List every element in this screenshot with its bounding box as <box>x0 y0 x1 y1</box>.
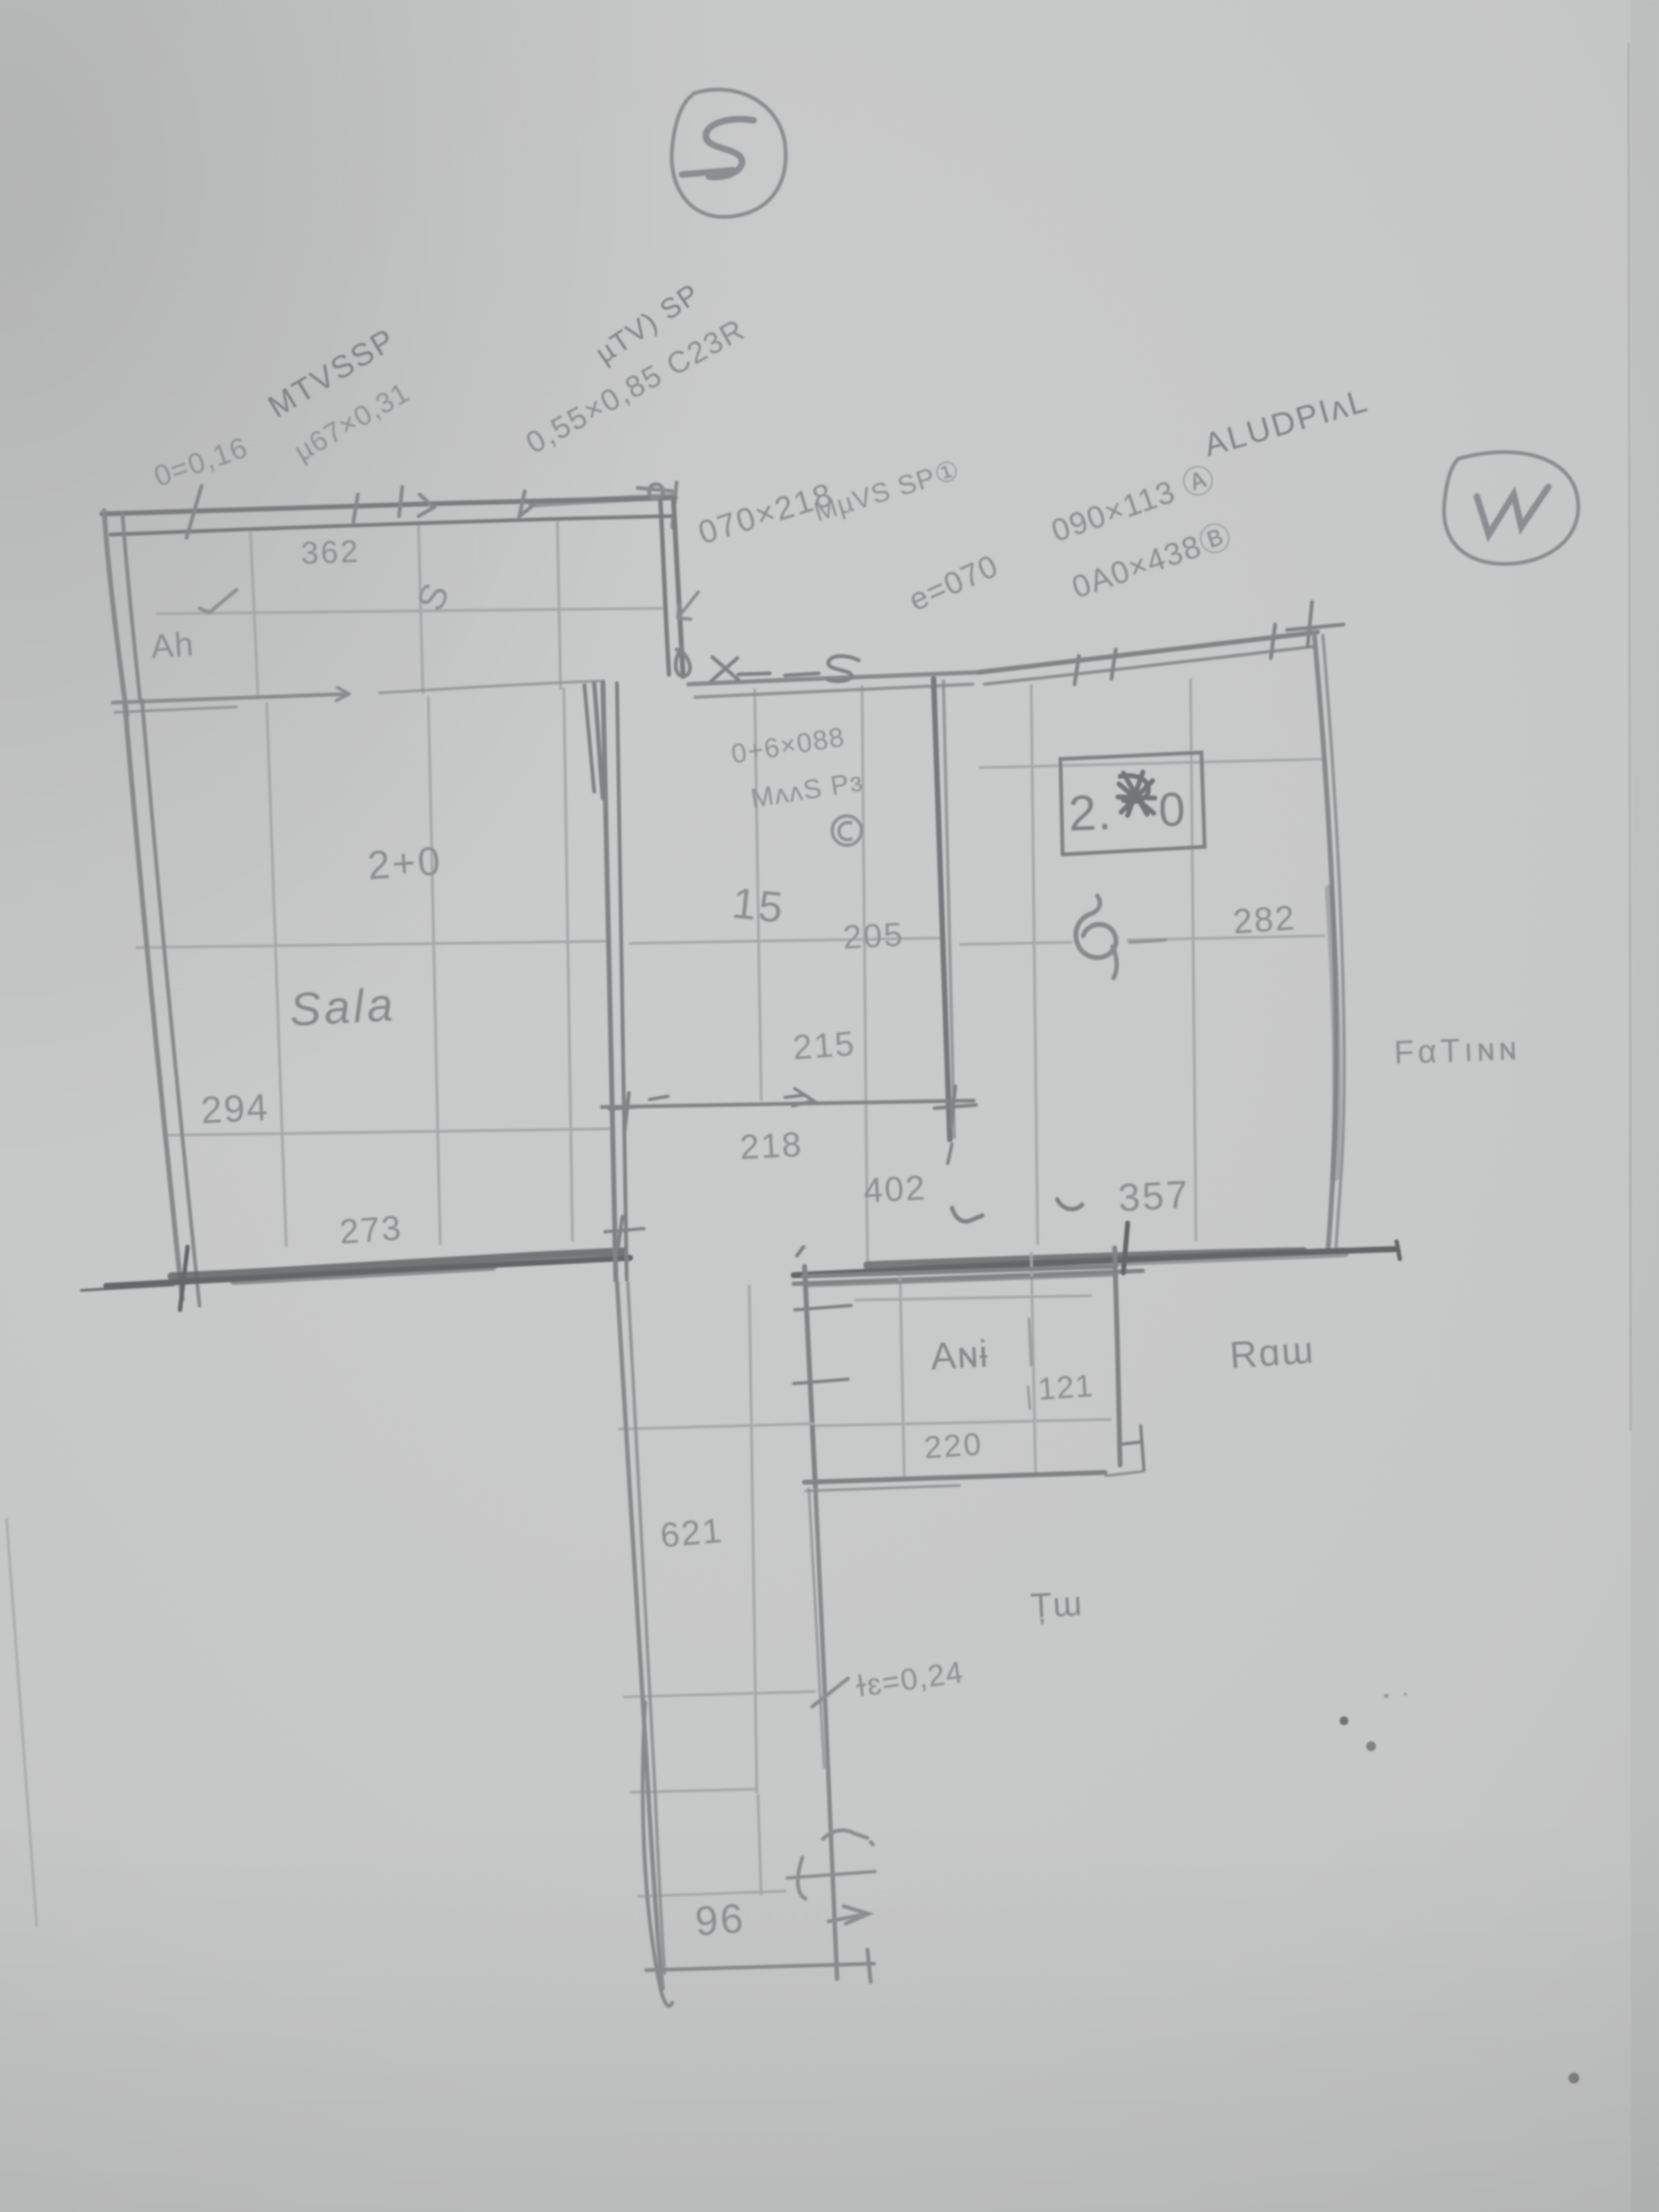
svg-text:362: 362 <box>300 533 361 571</box>
svg-text:273: 273 <box>338 1208 404 1251</box>
svg-text:96: 96 <box>693 1895 747 1945</box>
svg-text:Rɑɯ: Rɑɯ <box>1229 1328 1316 1377</box>
svg-text:294: 294 <box>200 1086 271 1131</box>
svg-text:402: 402 <box>863 1168 927 1210</box>
svg-text:357: 357 <box>1117 1173 1191 1220</box>
svg-text:Țɯ: Țɯ <box>1030 1584 1084 1625</box>
svg-text:215: 215 <box>792 1024 857 1067</box>
svg-text:Sala: Sala <box>288 979 397 1036</box>
svg-text:2+0: 2+0 <box>366 838 443 888</box>
svg-text:220: 220 <box>923 1426 984 1465</box>
svg-text:0: 0 <box>1158 782 1186 837</box>
svg-text:Aɴɨ: Aɴɨ <box>930 1332 990 1377</box>
svg-text:218: 218 <box>739 1124 803 1167</box>
svg-text:121: 121 <box>1037 1368 1095 1407</box>
svg-text:205: 205 <box>842 916 905 956</box>
svg-text:Ah: Ah <box>150 626 195 666</box>
svg-text:621: 621 <box>659 1510 725 1555</box>
svg-text:282: 282 <box>1232 898 1297 941</box>
svg-text:FαTıɴɴ: FαTıɴɴ <box>1393 1030 1521 1071</box>
svg-text:15: 15 <box>730 878 787 932</box>
svg-text:2.: 2. <box>1068 785 1113 841</box>
